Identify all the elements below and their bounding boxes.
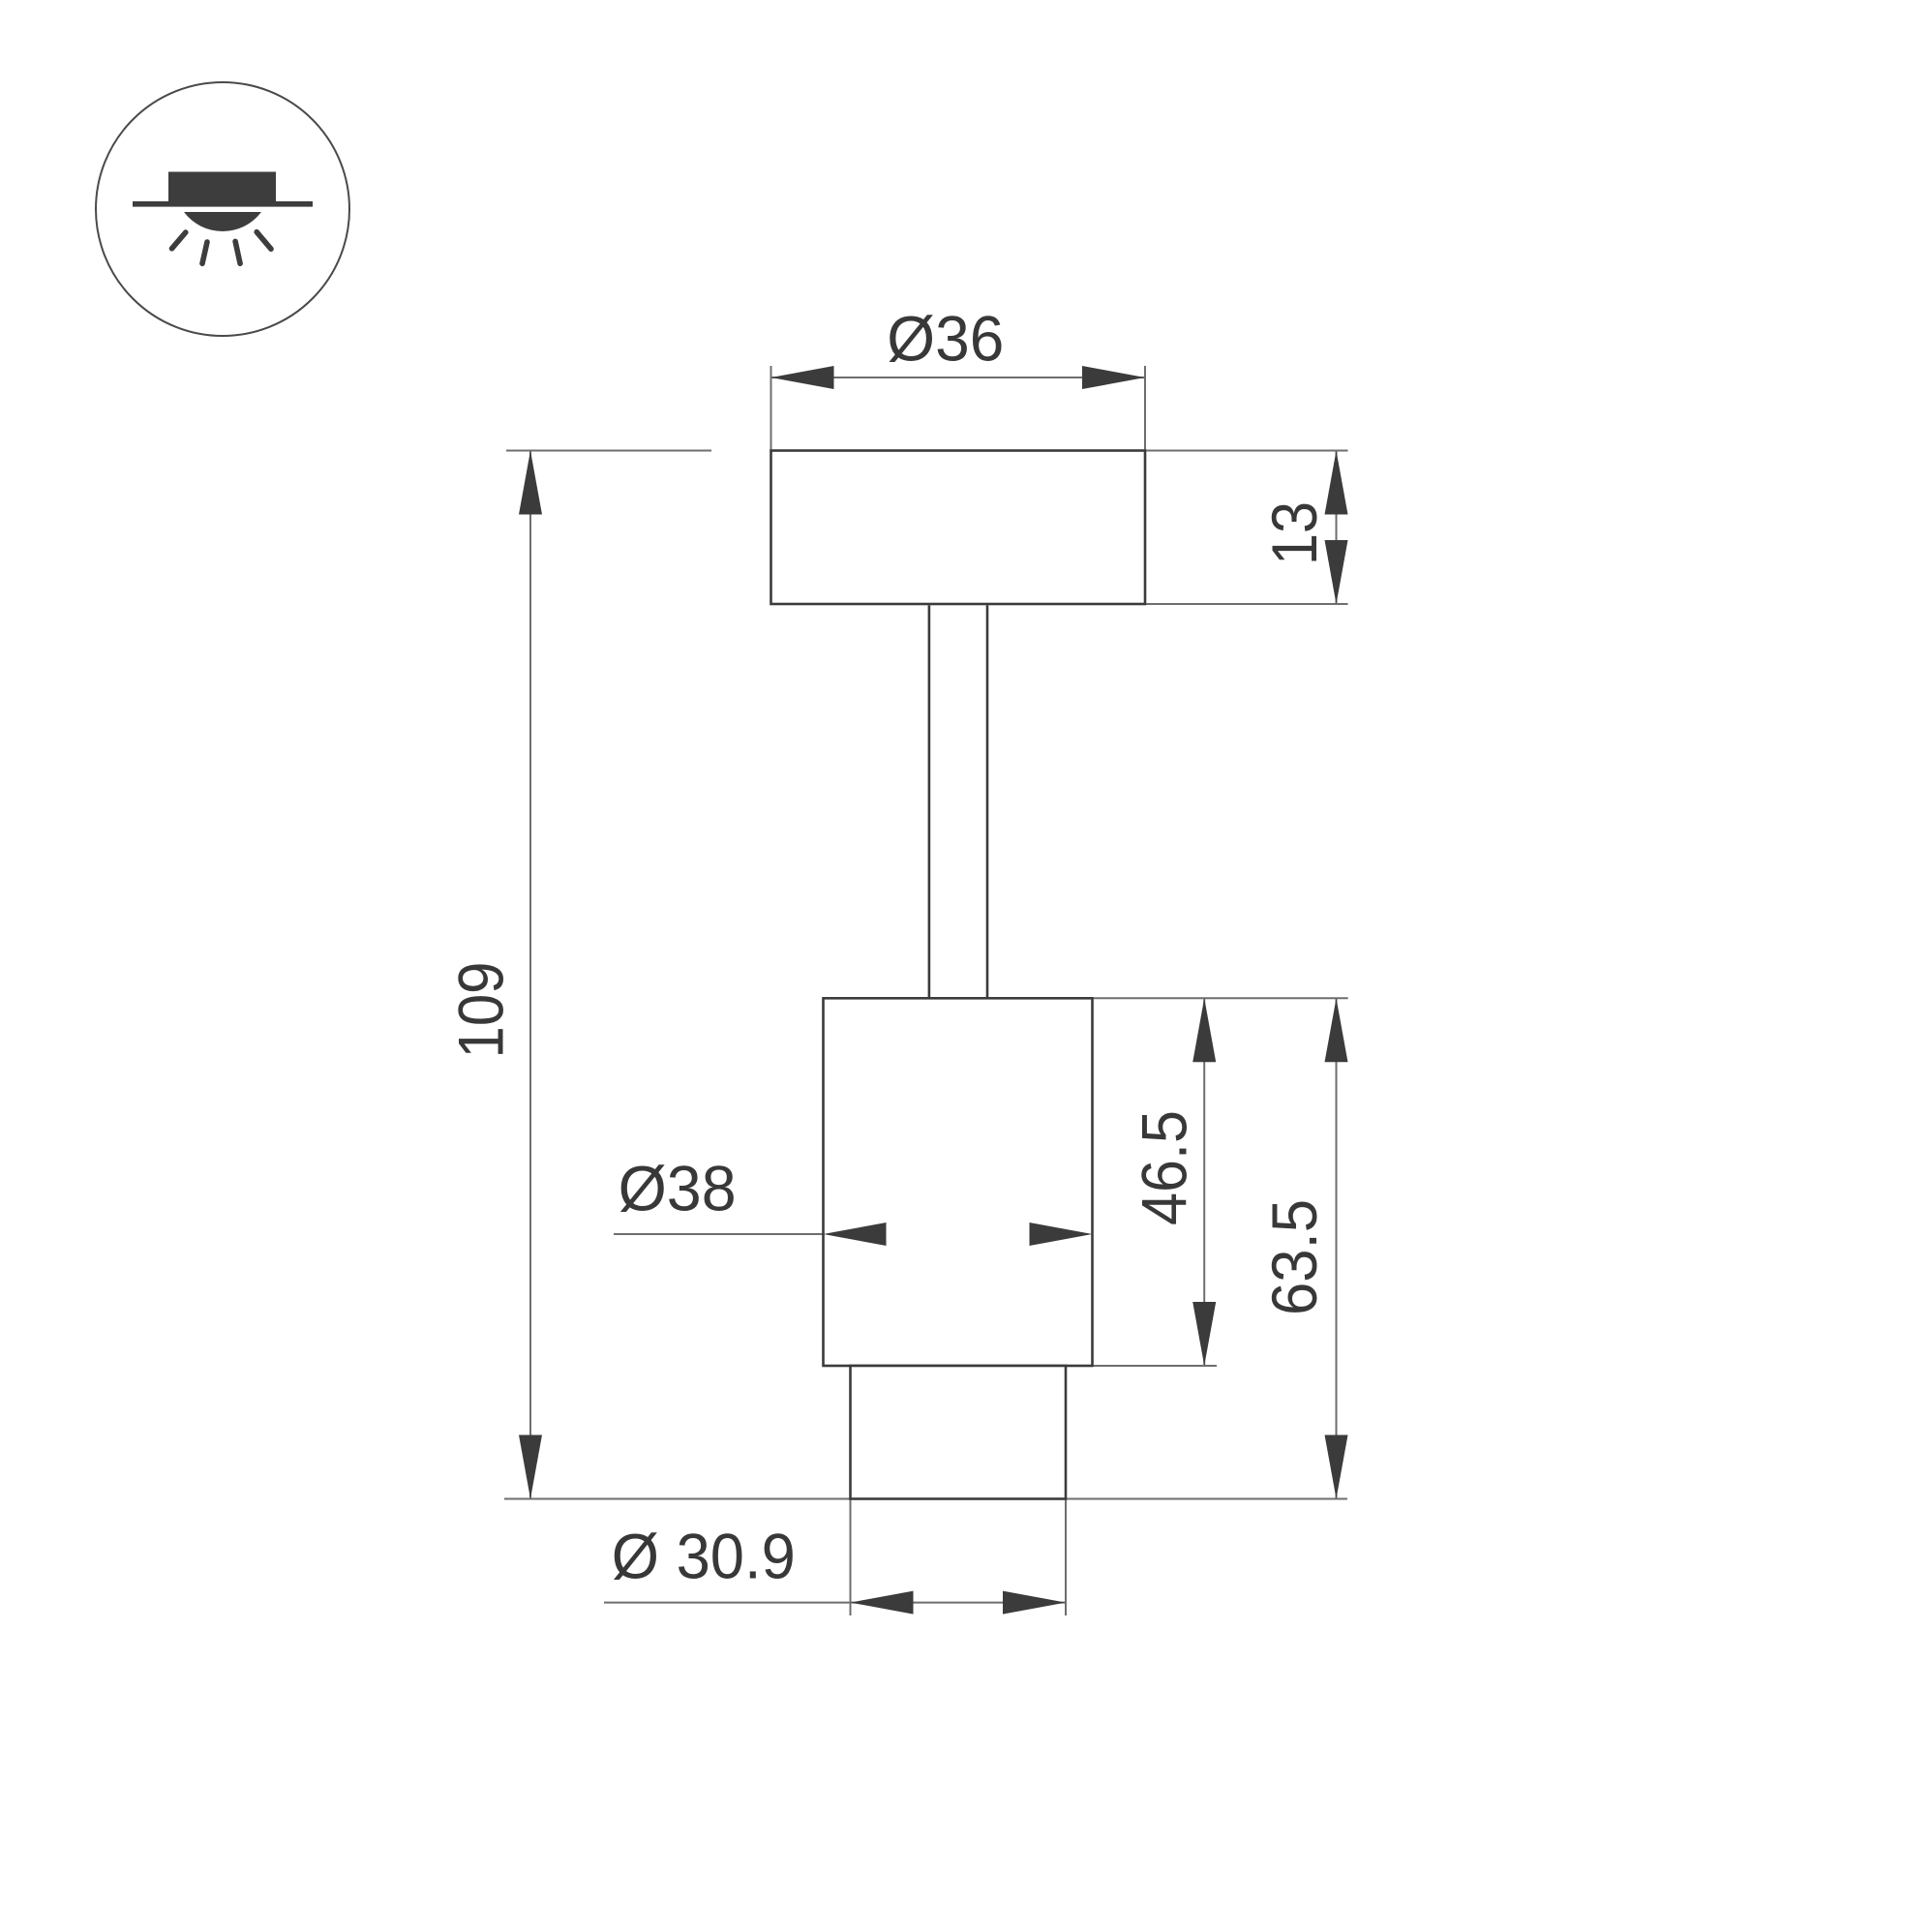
svg-text:13: 13 — [1258, 501, 1330, 565]
svg-text:46.5: 46.5 — [1129, 1110, 1200, 1225]
svg-text:Ø38: Ø38 — [619, 1153, 737, 1224]
svg-text:63.5: 63.5 — [1258, 1199, 1330, 1315]
svg-text:Ø36: Ø36 — [887, 302, 1004, 374]
svg-text:Ø 30.9: Ø 30.9 — [612, 1521, 796, 1592]
svg-text:109: 109 — [445, 962, 517, 1059]
